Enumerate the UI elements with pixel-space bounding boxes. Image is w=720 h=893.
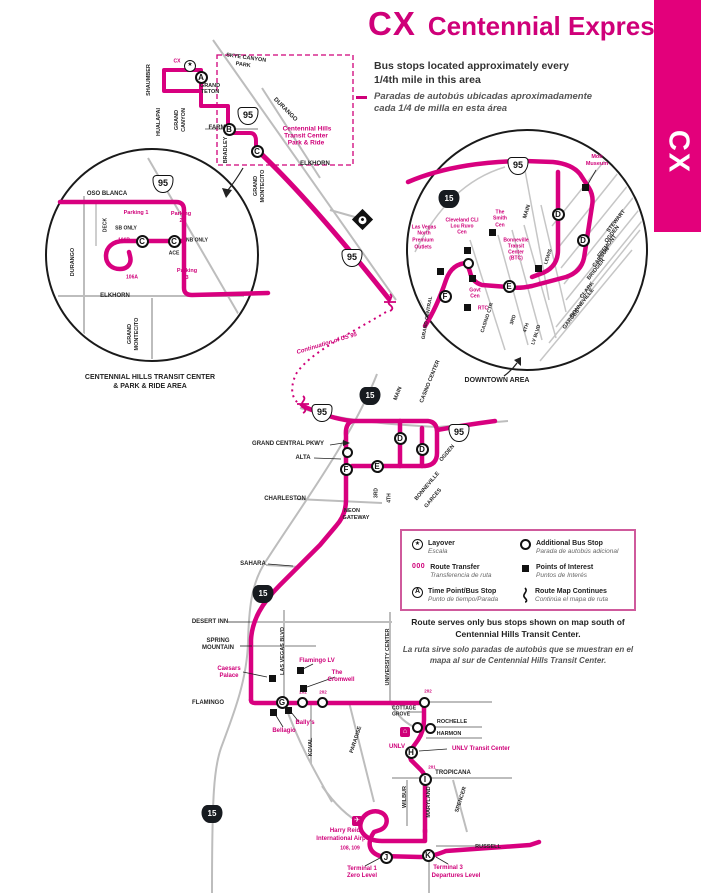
page-title: CX Centennial Express <box>368 5 669 43</box>
street-label: CASINO CENTER <box>420 360 442 404</box>
legend-item-route-transfer: 000 Route Transfer Transferencia de ruta <box>412 563 492 581</box>
poi-label: Continuation of US 95 <box>296 332 358 356</box>
street-label: GATEWAY <box>343 516 370 522</box>
timepoint-D: D <box>416 443 429 456</box>
street-label: MARYLAND <box>427 786 433 817</box>
poi-label: Parking 1 <box>124 211 149 217</box>
legend-label: Route Map Continues <box>535 587 608 596</box>
legend-label-es: Parada de autobús adicional <box>536 548 618 556</box>
legend-label: Points of Interest <box>536 563 593 572</box>
street-label: BRIDGER <box>587 258 607 282</box>
street-label: SPENCER <box>455 786 469 813</box>
legend-label-es: Continúa el mapa de ruta <box>535 596 608 604</box>
street-label: DESERT INN <box>192 619 228 625</box>
street-label: GRAND CENTRAL PKWY <box>252 441 324 447</box>
street-label: DURANGO <box>71 248 77 276</box>
route-transfer-label: 201 <box>428 766 436 771</box>
timepoint-I: I <box>419 773 432 786</box>
route-terminal-label: CX <box>174 59 181 64</box>
poi-label: Parking <box>171 212 191 218</box>
time-point-icon: A <box>412 587 423 598</box>
i15-shield: 15 <box>439 190 460 208</box>
poi-label: Premium <box>412 238 433 243</box>
street-label: NB ONLY <box>186 238 208 243</box>
poi-label: Flamingo LV <box>299 658 335 664</box>
street-label: OGDEN <box>439 444 456 463</box>
poi-marker <box>489 229 496 236</box>
legend-item-layover: ★ Layover Escala <box>412 539 455 557</box>
poi-label: Terminal 3 <box>433 865 463 871</box>
street-label: MONTECITO <box>135 318 141 351</box>
street-label: SPRING <box>206 638 229 644</box>
airport-icon: ✈ <box>352 816 362 826</box>
frequency-note-en-line2: 1/4th mile in this area <box>374 74 569 88</box>
frequency-note-es: Paradas de autobús ubicadas aproximadame… <box>374 91 592 116</box>
poi-label: Harry Reid <box>330 828 360 834</box>
street-label: SAHARA <box>240 561 266 567</box>
street-label: DURANGO <box>272 97 298 123</box>
street-label: CHARLESTON <box>264 496 306 502</box>
poi-label: Caesars <box>217 666 240 672</box>
park-ride-caption-line2: & PARK & RIDE AREA <box>113 383 187 390</box>
timepoint-D: D <box>552 208 565 221</box>
street-label: ACE <box>169 251 180 256</box>
frequency-note-es-line1: Paradas de autobús ubicadas aproximadame… <box>374 91 592 103</box>
street-label: CANYON <box>182 108 188 132</box>
additional-stop-marker <box>342 447 353 458</box>
poi-marker <box>464 247 471 254</box>
poi-label: Zero Level <box>347 873 377 879</box>
route-transfer-label: 108, 109 <box>340 846 359 851</box>
route-continues-icon <box>520 587 530 608</box>
poi-label: UNLV Transit Center <box>452 746 510 752</box>
poi-label: Cen <box>495 223 504 228</box>
street-label: GRAND <box>254 176 260 196</box>
poi-label: RTC <box>478 306 488 311</box>
legend-item-points-of-interest: Points of Interest Puntos de Interés <box>520 563 593 581</box>
street-label: MAIN <box>523 204 533 219</box>
timepoint-C: C <box>136 235 149 248</box>
legend-item-additional-stop: Additional Bus Stop Parada de autobús ad… <box>520 539 618 557</box>
legend-label-es: Escala <box>428 548 455 556</box>
street-label: RUSSELL <box>475 845 501 851</box>
us95-shield: 95 <box>153 175 174 193</box>
i15-shield: 15 <box>253 585 274 603</box>
frequency-note-es-line2: cada 1/4 de milla en esta área <box>374 103 592 115</box>
us95-shield: 95 <box>342 249 363 267</box>
poi-label: Palace <box>219 673 238 679</box>
route-transfer-symbol: 000 <box>412 563 425 570</box>
timepoint-D: D <box>577 234 590 247</box>
route-transfer-label: 106A <box>126 275 138 280</box>
us95-shield: 95 <box>508 157 529 175</box>
poi-marker <box>300 685 307 692</box>
poi-label: The <box>332 670 343 676</box>
park-ride-caption-line1: CENTENNIAL HILLS TRANSIT CENTER <box>85 374 215 381</box>
street-label: 4TH <box>523 323 531 334</box>
poi-label: RJC <box>538 282 547 287</box>
poi-label: Smith <box>493 216 507 221</box>
street-label: ALTA <box>295 455 310 461</box>
timepoint-B: B <box>223 123 236 136</box>
poi-label: Mob <box>591 155 602 161</box>
frequency-note-en: Bus stops located approximately every 1/… <box>374 60 569 87</box>
route-transfer-label: 106B <box>118 238 130 243</box>
service-note-en-line2: Centennial Hills Transit Center. <box>402 629 634 641</box>
timepoint-C: C <box>251 145 264 158</box>
poi-label: 2 <box>179 219 182 225</box>
poi-marker <box>582 184 589 191</box>
service-note-es: La ruta sirve solo paradas de autobús qu… <box>402 644 634 666</box>
street-label: MAIN <box>394 386 405 401</box>
poi-label: Departures Level <box>432 873 481 879</box>
timepoint-E: E <box>503 280 516 293</box>
street-label: ELKHORN <box>100 293 130 299</box>
timepoint-F: F <box>340 463 353 476</box>
banner-route-code: CX <box>661 130 694 174</box>
street-label: ROCHELLE <box>437 720 467 726</box>
legend-label-es: Punto de tiempo/Parada <box>428 596 498 604</box>
us95-shield: 95 <box>449 424 470 442</box>
additional-stop-marker <box>317 697 328 708</box>
street-label: WILBUR <box>403 786 409 808</box>
additional-stop-marker <box>425 723 436 734</box>
legend-label: Additional Bus Stop <box>536 539 618 548</box>
street-label: OSO BLANCA <box>87 191 127 197</box>
us95-shield: 95 <box>312 404 333 422</box>
street-label: KOVAL <box>309 738 315 757</box>
additional-stop-marker <box>463 258 474 269</box>
poi-label: International Airport <box>316 836 373 842</box>
legend-label-es: Puntos de Interés <box>536 572 593 580</box>
timepoint-A: A <box>195 71 208 84</box>
street-label: ELKHORN <box>300 161 330 167</box>
street-label: GRAND <box>175 110 181 130</box>
street-label: HUALAPAI <box>157 108 163 136</box>
timepoint-C: C <box>168 235 181 248</box>
route-transfer-label: 202 <box>319 691 327 696</box>
street-label: DECK <box>103 218 108 232</box>
street-label: PARADISE <box>350 726 364 754</box>
unlv-building-icon: ⌂ <box>400 727 410 737</box>
timepoint-D: D <box>394 432 407 445</box>
poi-marker <box>437 268 444 275</box>
street-label: GRAND <box>128 324 134 344</box>
legend-item-time-point: A Time Point/Bus Stop Punto de tiempo/Pa… <box>412 587 498 605</box>
note-tick <box>356 96 367 99</box>
street-label: TETON <box>201 90 220 96</box>
street-label: HARMON <box>437 732 462 738</box>
legend-item-route-continues: Route Map Continues Continúa el mapa de … <box>520 587 608 608</box>
additional-stop-icon <box>520 539 531 550</box>
street-label: 3RD <box>374 488 379 498</box>
layover-icon: ★ <box>412 539 423 550</box>
street-label: MONTECITO <box>261 170 267 203</box>
street-label: 3RD <box>510 314 518 325</box>
poi-marker <box>535 265 542 272</box>
poi-label: UNLV <box>389 744 405 750</box>
poi-marker <box>464 304 471 311</box>
frequency-note-en-line1: Bus stops located approximately every <box>374 60 569 74</box>
poi-label: Cen <box>470 294 479 299</box>
map-label-layer: SKYE CANYONPARKGRANDTETONSHAUMBERHUALAPA… <box>0 0 720 893</box>
legend-label: Route Transfer <box>430 563 491 572</box>
additional-stop-marker <box>419 697 430 708</box>
timepoint-K: K <box>422 849 435 862</box>
street-label: GROVE <box>392 712 410 717</box>
street-label: FLAMINGO <box>192 700 224 706</box>
poi-label: Cromwell <box>327 677 354 683</box>
us95-shield: 95 <box>238 107 259 125</box>
poi-marker <box>469 275 476 282</box>
poi-label: Bellagio <box>272 728 295 734</box>
downtown-caption: DOWNTOWN AREA <box>465 377 530 384</box>
poi-marker <box>269 675 276 682</box>
timepoint-F: F <box>439 290 452 303</box>
street-label: LEWIS <box>544 249 554 266</box>
poi-label: Cen <box>457 230 466 235</box>
i15-shield: 15 <box>202 805 223 823</box>
legend: ★ Layover Escala 000 Route Transfer Tran… <box>400 529 636 611</box>
service-note-en-line1: Route serves only bus stops shown on map… <box>402 617 634 629</box>
service-note-en: Route serves only bus stops shown on map… <box>402 617 634 641</box>
timepoint-G: G <box>276 696 289 709</box>
poi-label: 3 <box>185 276 188 282</box>
service-note-es-line1: La ruta sirve solo paradas de autobús qu… <box>402 644 634 655</box>
timepoint-E: E <box>371 460 384 473</box>
street-label: LV BLVD <box>531 324 542 345</box>
route-code: CX <box>368 5 416 43</box>
poi-label: Park & Ride <box>288 141 325 148</box>
street-label: GRAND CENTRAL <box>422 296 435 340</box>
street-label: GARCES <box>562 309 581 331</box>
street-label: MOUNTAIN <box>202 645 234 651</box>
street-label: LAS VEGAS BLVD <box>281 627 287 675</box>
legend-label-es: Transferencia de ruta <box>430 572 491 580</box>
route-map-page: SKYE CANYONPARKGRANDTETONSHAUMBERHUALAPA… <box>0 0 720 893</box>
legend-label: Layover <box>428 539 455 548</box>
poi-label: (BTC) <box>509 256 523 261</box>
timepoint-H: H <box>405 746 418 759</box>
poi-label: Parking <box>177 269 197 275</box>
street-label: SHAUMBER <box>147 64 153 96</box>
poi-marker <box>270 709 277 716</box>
service-note-es-line2: mapa al sur de Centennial Hills Transit … <box>402 655 634 666</box>
route-name: Centennial Express <box>428 11 669 42</box>
route-transfer-label: 202 <box>424 690 432 695</box>
poi-label: Bally's <box>295 720 314 726</box>
poi-label: Terminal 1 <box>347 866 377 872</box>
street-label: UNIVERSITY CENTER <box>386 628 392 685</box>
street-label: NEON <box>344 509 360 515</box>
legend-label: Time Point/Bus Stop <box>428 587 498 596</box>
layover-marker: ★ <box>184 60 196 72</box>
timepoint-J: J <box>380 851 393 864</box>
additional-stop-marker <box>297 697 308 708</box>
street-label: 4TH <box>387 493 392 502</box>
route-code-banner: CX <box>654 0 701 232</box>
poi-icon <box>522 565 529 572</box>
layover-marker <box>351 208 372 229</box>
poi-label: Outlets <box>414 245 431 250</box>
street-label: TROPICANA <box>435 770 471 776</box>
poi-marker <box>297 667 304 674</box>
additional-stop-marker <box>412 722 423 733</box>
street-label: BRADLEY <box>224 137 230 164</box>
street-label: SB ONLY <box>115 226 137 231</box>
poi-label: North <box>417 231 430 236</box>
poi-label: Museum <box>586 162 608 168</box>
street-label: PARK <box>235 62 251 70</box>
i15-shield: 15 <box>360 387 381 405</box>
